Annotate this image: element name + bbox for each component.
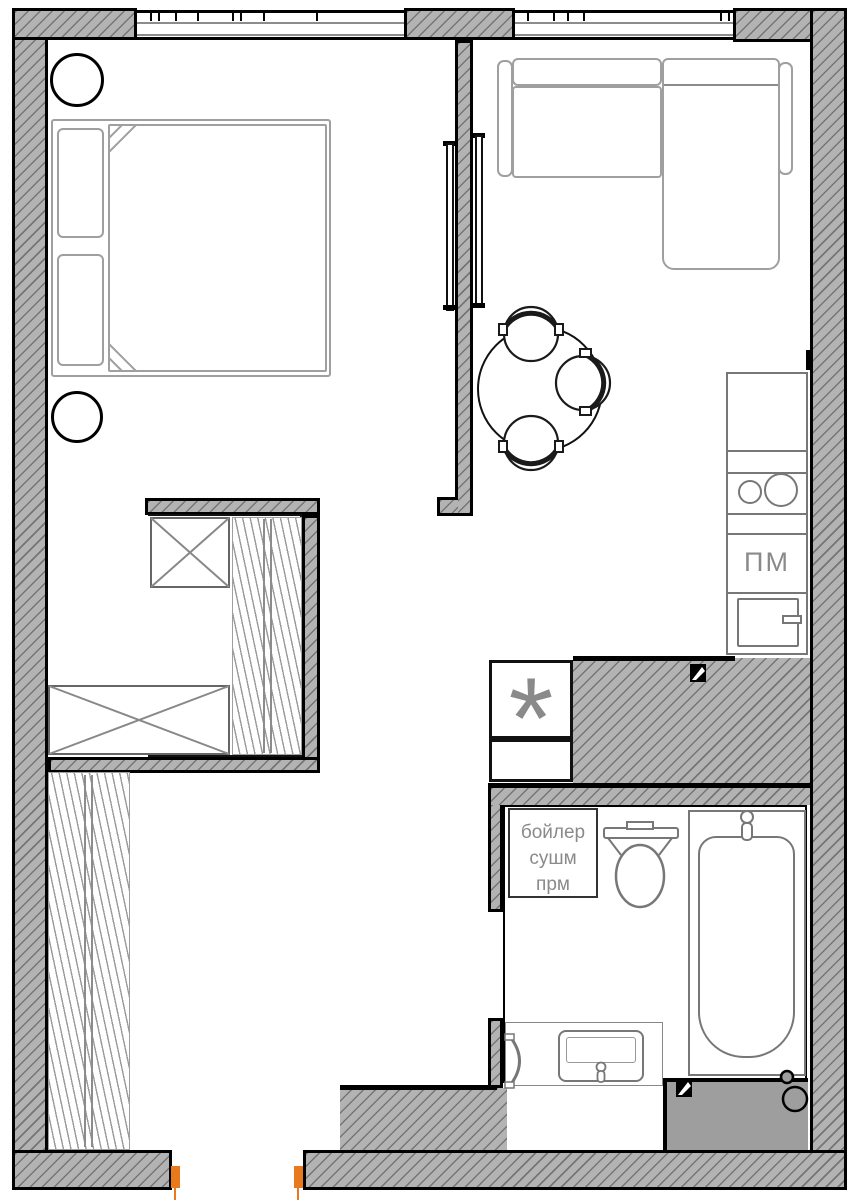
sofa-armrest-left: [497, 60, 513, 177]
bed-pillow: [57, 254, 104, 366]
closet-rail-line: [263, 519, 265, 753]
vestibule-top-edge: [340, 1085, 497, 1090]
bed-mattress: [108, 124, 327, 372]
wall-top-left-block: [12, 8, 137, 40]
bed-pillow: [57, 128, 104, 238]
window-sash-tick: [232, 13, 234, 21]
entry-jamb-right: [294, 1166, 303, 1188]
wall-vestibule-block: [340, 1088, 507, 1150]
wall-bathroom-left-upper: [488, 805, 503, 912]
kitchen-divider: [727, 513, 807, 515]
window-sash-tick: [150, 13, 152, 21]
window-frame-line: [137, 34, 404, 36]
closet-cabinet-x: [150, 517, 230, 588]
window-frame-line: [137, 22, 404, 24]
window-frame-line: [515, 22, 733, 24]
wall-closet-right: [302, 515, 320, 773]
wall-closet-top: [145, 498, 320, 515]
kitchen-wall-tick: [806, 350, 811, 370]
wardrobe-rail-line: [91, 775, 93, 1147]
closet-hanging-rail: [232, 517, 302, 755]
entry-jamb-left: [171, 1166, 180, 1188]
sink-basin: [566, 1037, 636, 1063]
tv-bedroom: [446, 143, 454, 311]
kitchen-divider: [727, 472, 807, 474]
boiler-label-line3: прм: [508, 875, 598, 894]
boiler-label-line1: бойлер: [508, 823, 598, 842]
closet-cabinet-x-wide: [48, 685, 230, 755]
wardrobe-rail-line: [84, 775, 86, 1147]
sofa-chaise-seam: [664, 84, 778, 86]
window-sash-tick: [567, 13, 569, 21]
window-sash-tick: [728, 13, 730, 21]
sofa-chaise: [662, 58, 780, 270]
bedside-table-round: [51, 391, 103, 443]
window-sash-tick: [583, 13, 585, 21]
tv-cap: [443, 305, 456, 310]
window-sash-tick: [263, 13, 265, 21]
entry-line-left: [174, 1188, 176, 1200]
bedside-table-round: [50, 53, 104, 107]
wall-right: [810, 8, 847, 1190]
window-living: [515, 10, 733, 40]
sofa-seat: [512, 86, 662, 178]
window-sash-tick: [240, 13, 242, 21]
window-sash-tick: [527, 13, 529, 21]
wall-partition-foot: [437, 497, 458, 516]
tv-living: [475, 135, 483, 307]
shaft-top-edge: [573, 656, 735, 661]
window-sash-tick: [316, 13, 318, 21]
window-sash-tick: [720, 13, 722, 21]
window-sash-tick: [553, 13, 555, 21]
window-frame-line: [515, 34, 733, 36]
bathtub-inner: [698, 836, 795, 1058]
boiler-label-line2: сушм: [508, 849, 598, 868]
utility-symbol: *: [489, 662, 573, 777]
dining-table: [477, 326, 603, 452]
wall-top-pier: [404, 8, 515, 40]
window-sash-tick: [197, 13, 199, 21]
floor-plan: ПМ * бойлер сушм прм: [0, 0, 859, 1200]
kitchen-divider: [727, 450, 807, 452]
kitchen-divider: [727, 592, 807, 594]
wall-partition-living-bedroom: [455, 40, 473, 516]
fridge-handle: [782, 615, 802, 624]
wall-closet-bottom: [48, 757, 320, 773]
tv-cap: [472, 303, 485, 308]
closet-rail-line: [270, 519, 272, 753]
plumbing-block: [663, 1078, 808, 1150]
window-sash-tick: [158, 13, 160, 21]
window-bedroom: [137, 10, 404, 40]
entry-line-right: [297, 1188, 299, 1200]
wall-bathroom-top: [488, 783, 810, 805]
window-sash-tick: [175, 13, 177, 21]
kitchen-divider: [727, 533, 807, 535]
wall-bottom-right: [303, 1150, 847, 1190]
wall-bathroom-left-stub: [488, 1018, 503, 1088]
wall-left: [12, 8, 48, 1190]
hall-wardrobe: [48, 772, 130, 1150]
sofa-back-cushion: [512, 58, 662, 86]
sofa-armrest-right: [778, 62, 793, 175]
wall-shaft-block: [573, 658, 810, 785]
wall-bottom-left: [12, 1150, 172, 1190]
dishwasher-label: ПМ: [726, 549, 808, 576]
